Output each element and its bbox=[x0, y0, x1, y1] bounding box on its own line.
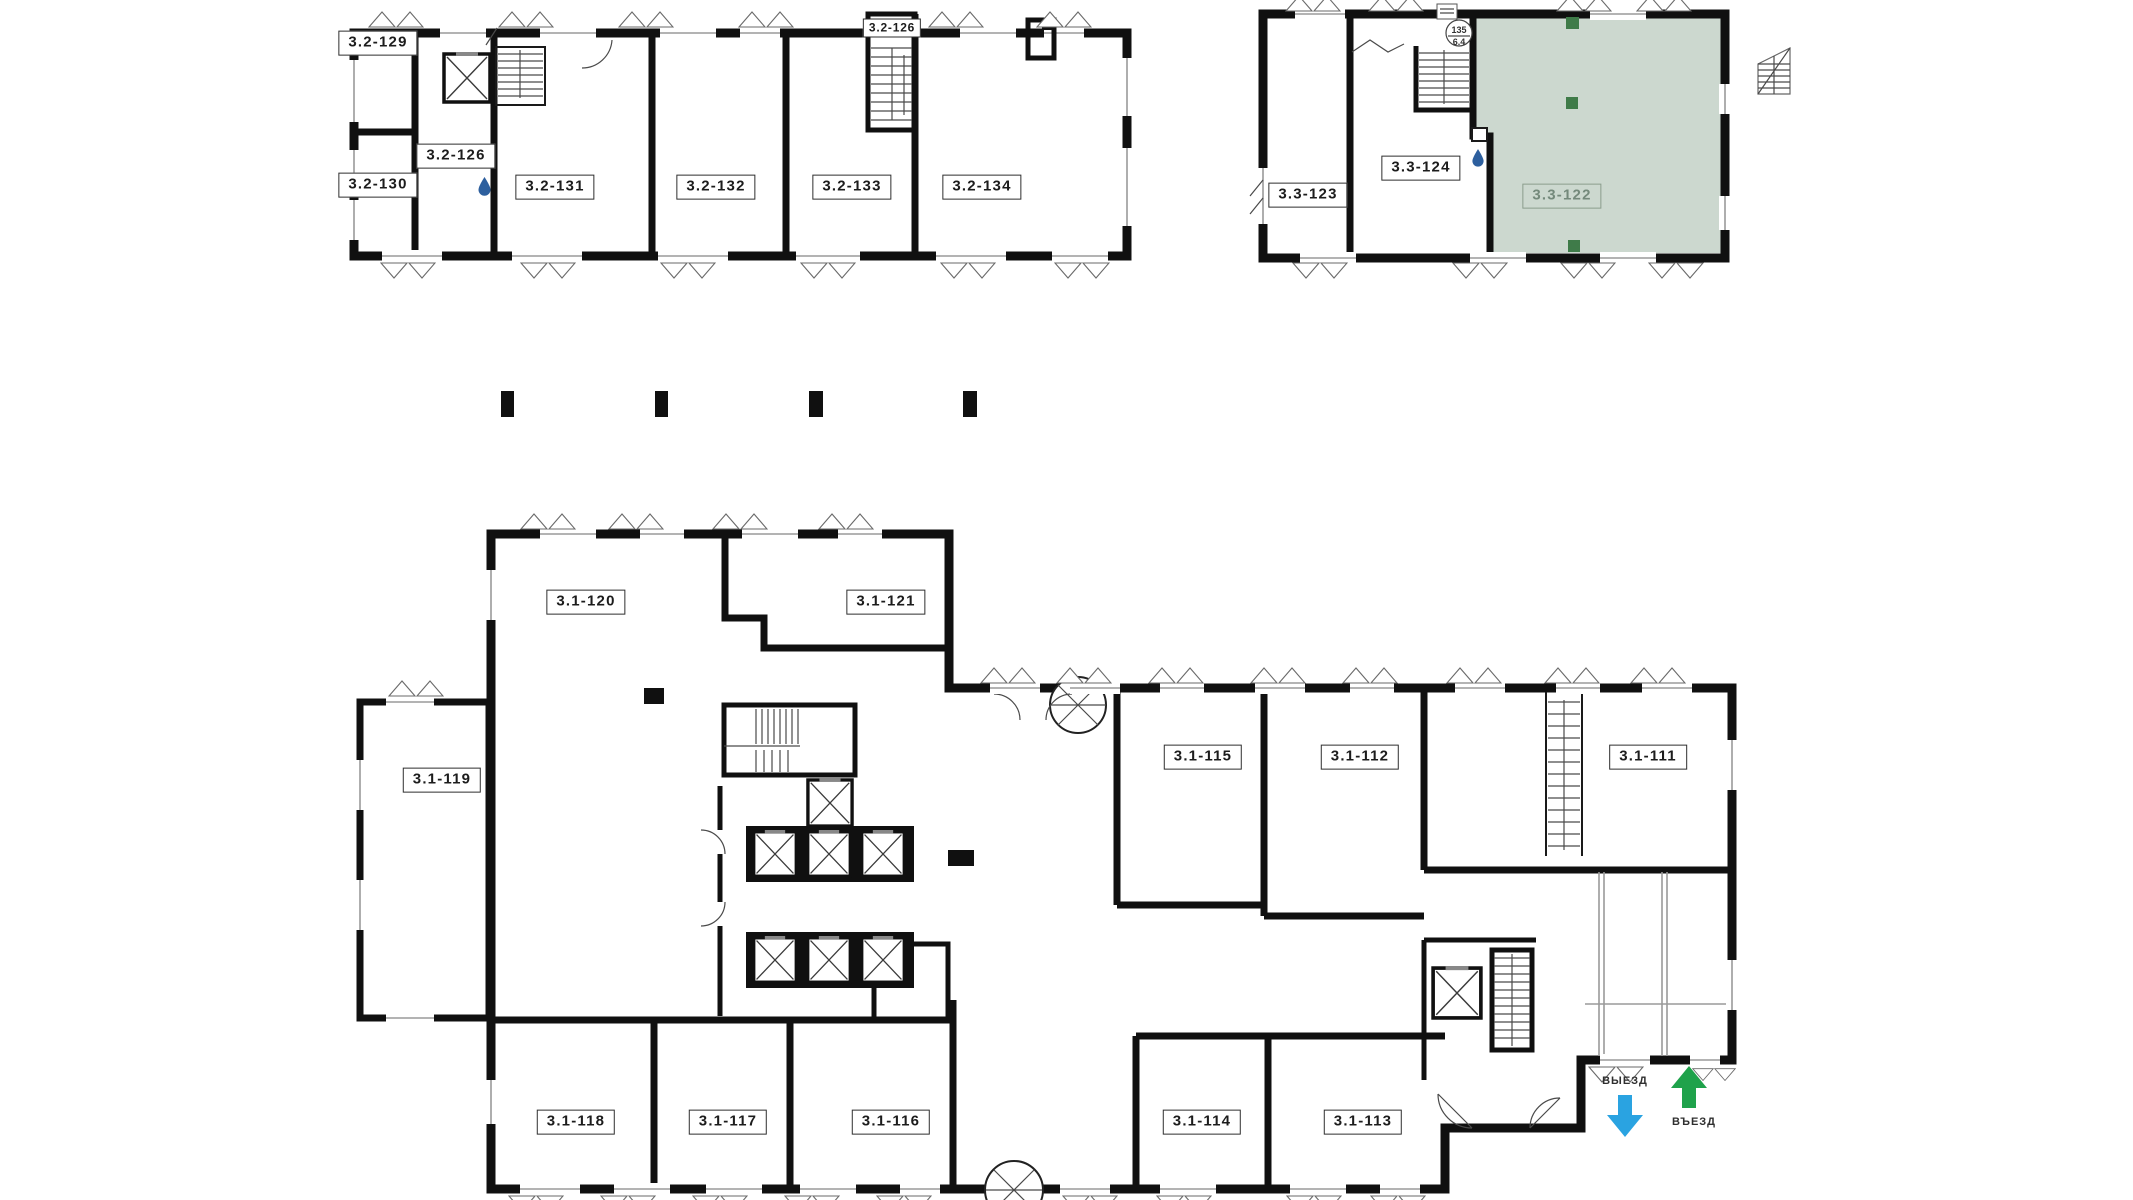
room-label-3-1-118[interactable]: 3.1-118 bbox=[537, 1110, 615, 1135]
column-marker bbox=[1568, 240, 1580, 252]
selected-room-area[interactable] bbox=[1473, 18, 1724, 253]
elevator-icon bbox=[808, 778, 852, 826]
elevator-icon bbox=[862, 830, 904, 876]
room-label-3-1-121[interactable]: 3.1-121 bbox=[846, 590, 925, 615]
room-label-3-1-115[interactable]: 3.1-115 bbox=[1164, 745, 1242, 770]
room-label-3-2-133[interactable]: 3.2-133 bbox=[812, 175, 891, 200]
elevator-icon bbox=[444, 52, 490, 102]
round-column bbox=[985, 1161, 1043, 1200]
elevator-icon bbox=[754, 936, 796, 982]
exit-arrow-icon bbox=[1607, 1095, 1643, 1137]
room-label-3-1-119[interactable]: 3.1-119 bbox=[403, 768, 481, 793]
floor-plan-drawing: 135 6.4 bbox=[0, 0, 2133, 1200]
room-label-3-3-124[interactable]: 3.3-124 bbox=[1381, 156, 1460, 181]
building-3-1 bbox=[354, 514, 1738, 1200]
column-marker bbox=[1566, 17, 1579, 29]
elevator-icon bbox=[1433, 966, 1481, 1018]
room-label-3-3-123[interactable]: 3.3-123 bbox=[1268, 183, 1347, 208]
elevator-icon bbox=[808, 830, 850, 876]
exterior-stair-icon bbox=[1758, 48, 1790, 94]
stair-badge: 135 6.4 bbox=[1446, 20, 1472, 47]
room-label-3-1-111[interactable]: 3.1-111 bbox=[1609, 745, 1687, 770]
elevator-icon bbox=[862, 936, 904, 982]
floor-plan-canvas: 135 6.4 bbox=[0, 0, 2133, 1200]
room-label-3-3-122-selected[interactable]: 3.3-122 bbox=[1522, 184, 1601, 209]
room-label-3-1-117[interactable]: 3.1-117 bbox=[689, 1110, 767, 1135]
room-label-3-2-131[interactable]: 3.2-131 bbox=[515, 175, 594, 200]
freestanding-columns bbox=[501, 391, 977, 417]
room-label-3-1-114[interactable]: 3.1-114 bbox=[1163, 1110, 1241, 1135]
column-marker bbox=[1566, 97, 1578, 109]
room-label-3-2-130[interactable]: 3.2-130 bbox=[338, 173, 417, 198]
room-label-3-2-126-lobby[interactable]: 3.2-126 bbox=[416, 144, 495, 169]
room-label-3-1-113[interactable]: 3.1-113 bbox=[1324, 1110, 1402, 1135]
room-label-3-2-134[interactable]: 3.2-134 bbox=[942, 175, 1021, 200]
elevator-icon bbox=[808, 936, 850, 982]
svg-text:135: 135 bbox=[1451, 25, 1466, 35]
svg-text:6.4: 6.4 bbox=[1453, 37, 1466, 47]
room-label-3-2-129[interactable]: 3.2-129 bbox=[338, 31, 417, 56]
room-label-3-1-116[interactable]: 3.1-116 bbox=[852, 1110, 930, 1135]
room-label-3-2-132[interactable]: 3.2-132 bbox=[676, 175, 755, 200]
room-label-3-1-112[interactable]: 3.1-112 bbox=[1321, 745, 1399, 770]
elevator-icon bbox=[754, 830, 796, 876]
water-drop-icon bbox=[1472, 149, 1483, 167]
room-label-3-1-120[interactable]: 3.1-120 bbox=[546, 590, 625, 615]
enter-label: ВЪЕЗД bbox=[1672, 1116, 1716, 1128]
exit-label: ВЫЕЗД bbox=[1602, 1075, 1648, 1087]
room-label-3-2-126-stair[interactable]: 3.2-126 bbox=[863, 19, 921, 38]
water-drop-icon bbox=[479, 177, 491, 196]
building-3-3: 135 6.4 bbox=[1250, 0, 1790, 278]
